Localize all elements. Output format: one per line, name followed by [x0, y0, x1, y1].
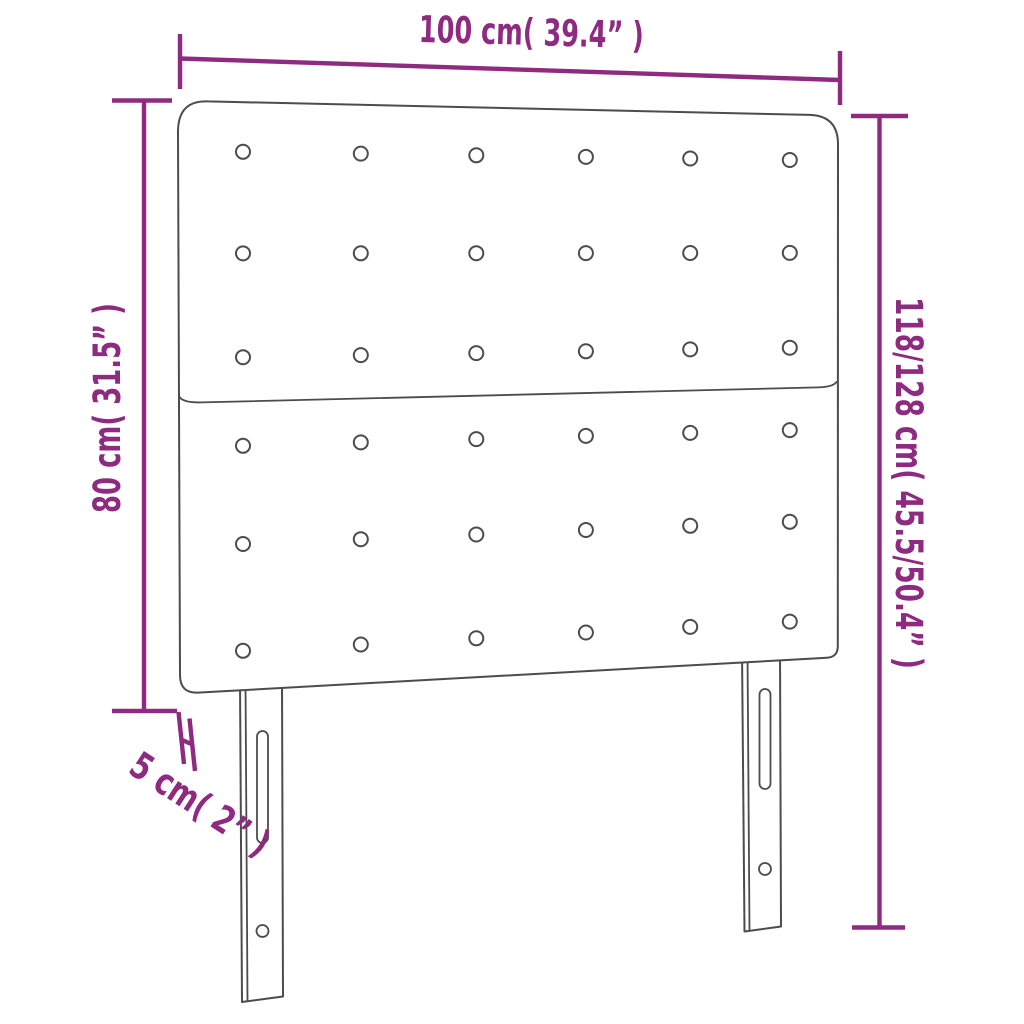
tufting-button — [783, 246, 797, 260]
tufting-button — [579, 344, 593, 358]
width-dimension-line — [180, 59, 840, 81]
tufting-button — [783, 341, 797, 355]
tufting-button — [236, 537, 250, 551]
tufting-button — [579, 429, 593, 443]
tufting-button — [236, 350, 250, 364]
diagram-svg: 100 cm( 39.4” ) 118/128 cm( 45.5/50.4” )… — [0, 0, 1024, 1024]
tufting-button — [354, 638, 368, 652]
tufting-button — [683, 620, 697, 634]
tufting-button — [469, 528, 483, 542]
headboard-dimension-diagram: 100 cm( 39.4” ) 118/128 cm( 45.5/50.4” )… — [0, 0, 1024, 1024]
tufting-button — [469, 631, 483, 645]
headboard-legs — [240, 648, 781, 1002]
tufting-button — [354, 532, 368, 546]
width-label: 100 cm( 39.4” ) — [418, 8, 644, 57]
tufting-button — [783, 515, 797, 529]
right-leg — [742, 648, 781, 932]
panel-height-label: 80 cm( 31.5” ) — [86, 303, 129, 513]
tufting-button — [354, 246, 368, 260]
tufting-button — [579, 150, 593, 164]
tufting-button — [683, 342, 697, 356]
tufting-button — [469, 432, 483, 446]
tufting-button — [354, 348, 368, 362]
tufting-button — [469, 346, 483, 360]
tufting-button — [683, 519, 697, 533]
tufting-button — [469, 246, 483, 260]
tufting-button — [783, 423, 797, 437]
headboard-panel-outline — [178, 101, 838, 692]
tufting-button — [579, 626, 593, 640]
tufting-button — [236, 145, 250, 159]
total-height-label: 118/128 cm( 45.5/50.4” ) — [887, 297, 930, 669]
tufting-button — [579, 523, 593, 537]
tufting-button — [783, 615, 797, 629]
tufting-button — [469, 148, 483, 162]
tufting-button — [236, 644, 250, 658]
tufting-button — [236, 246, 250, 260]
tufting-button — [683, 152, 697, 166]
tufting-button — [579, 246, 593, 260]
depth-dimension — [179, 712, 196, 771]
tufting-button — [683, 246, 697, 260]
tufting-button — [783, 153, 797, 167]
tufting-button — [354, 435, 368, 449]
tufting-button — [236, 439, 250, 453]
depth-extension-left — [179, 712, 185, 764]
tufting-button — [683, 426, 697, 440]
tufting-button — [354, 147, 368, 161]
